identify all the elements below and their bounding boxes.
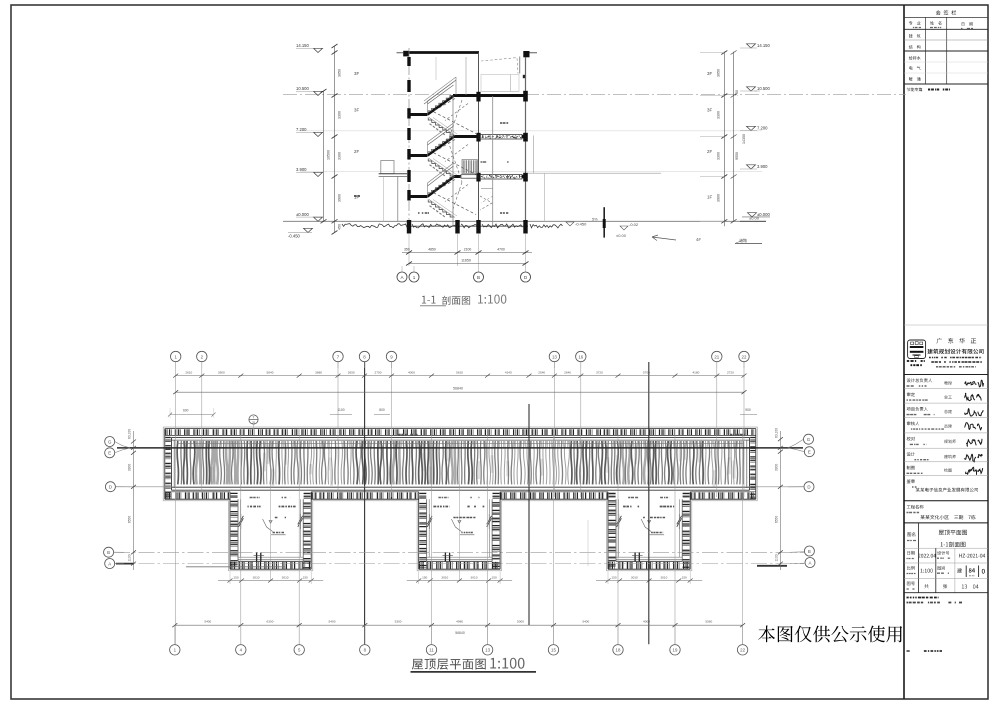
svg-text:900: 900 [745, 408, 751, 412]
svg-text:6550: 6550 [774, 516, 778, 524]
svg-text:350: 350 [404, 248, 410, 252]
svg-text:3880: 3880 [315, 370, 322, 374]
svg-text:14.150: 14.150 [757, 43, 770, 48]
svg-text:150: 150 [422, 576, 427, 580]
svg-text:3900: 3900 [218, 370, 225, 374]
svg-text:3900: 3900 [717, 194, 721, 202]
svg-text:D: D [109, 485, 112, 490]
svg-text:450: 450 [338, 224, 342, 230]
svg-text:3900: 3900 [774, 464, 778, 472]
svg-text:B: B [808, 549, 811, 554]
svg-text:56840: 56840 [455, 631, 465, 635]
svg-text:3720: 3720 [596, 370, 603, 374]
svg-text:3300: 3300 [338, 111, 342, 119]
svg-text:150: 150 [303, 576, 308, 580]
svg-text:21: 21 [714, 354, 719, 359]
svg-text:±0.000: ±0.000 [757, 212, 770, 217]
svg-text:1F: 1F [354, 195, 359, 200]
svg-text:16: 16 [578, 354, 583, 359]
svg-text:A: A [809, 560, 812, 565]
svg-text:5000: 5000 [517, 620, 524, 624]
svg-text:800: 800 [379, 408, 385, 412]
svg-text:60,100: 60,100 [127, 429, 131, 439]
svg-text:3F: 3F [354, 71, 359, 76]
svg-text:7: 7 [253, 415, 255, 419]
svg-text:-0.450: -0.450 [575, 222, 587, 227]
svg-text:3F: 3F [707, 71, 712, 76]
svg-text:4#: 4# [696, 237, 701, 242]
svg-text:-0.450: -0.450 [288, 234, 301, 239]
svg-text:2610: 2610 [185, 370, 192, 374]
svg-text:±0.00: ±0.00 [616, 233, 627, 238]
svg-text:G: G [807, 437, 811, 442]
svg-text:2540: 2540 [538, 370, 545, 374]
svg-text:10.500: 10.500 [296, 86, 309, 91]
svg-text:B: B [107, 550, 110, 555]
svg-text:1100: 1100 [337, 408, 344, 412]
svg-text:3900: 3900 [127, 464, 131, 472]
svg-text:6550: 6550 [127, 516, 131, 524]
svg-text:13: 13 [552, 354, 557, 359]
svg-text:150: 150 [682, 576, 687, 580]
svg-text:2650: 2650 [348, 370, 355, 374]
svg-text:2F: 2F [354, 149, 359, 154]
svg-text:3F: 3F [707, 108, 712, 113]
svg-text:60,100: 60,100 [774, 428, 778, 438]
svg-text:D: D [807, 485, 810, 490]
svg-text:E: E [108, 451, 111, 456]
svg-text:750: 750 [735, 90, 739, 96]
svg-text:3010: 3010 [631, 576, 638, 580]
svg-text:3650: 3650 [717, 69, 721, 77]
svg-text:1F: 1F [707, 195, 712, 200]
svg-text:5700: 5700 [643, 370, 650, 374]
svg-text:4000: 4000 [408, 370, 415, 374]
svg-text:3300: 3300 [717, 152, 721, 160]
svg-text:3F: 3F [354, 108, 359, 113]
svg-text:3300: 3300 [338, 152, 342, 160]
svg-text:14.150: 14.150 [296, 43, 309, 48]
svg-text:22: 22 [742, 354, 747, 359]
svg-text:±0.00: ±0.00 [749, 216, 760, 221]
svg-text:11650: 11650 [461, 258, 471, 262]
svg-text:3010: 3010 [471, 576, 478, 580]
svg-text:22: 22 [740, 648, 745, 653]
svg-text:150: 150 [492, 576, 497, 580]
svg-text:4000: 4000 [643, 620, 650, 624]
svg-text:2F: 2F [707, 149, 712, 154]
svg-text:E: E [808, 450, 811, 455]
svg-text:2720: 2720 [727, 370, 734, 374]
svg-text:5400: 5400 [204, 620, 211, 624]
svg-text:5%: 5% [592, 218, 598, 222]
svg-text:4980: 4980 [456, 620, 463, 624]
svg-text:1130: 1130 [774, 554, 778, 561]
svg-text:9550: 9550 [735, 152, 739, 160]
svg-text:7.200: 7.200 [296, 127, 307, 132]
svg-text:150: 150 [233, 576, 238, 580]
svg-text:5610: 5610 [456, 370, 463, 374]
svg-text:3.900: 3.900 [296, 167, 307, 172]
svg-text:4180: 4180 [692, 370, 699, 374]
svg-text:3650: 3650 [338, 69, 342, 77]
svg-text:2700: 2700 [375, 370, 382, 374]
svg-text:3.900: 3.900 [757, 164, 768, 169]
svg-text:15: 15 [551, 648, 556, 653]
svg-text:J5: J5 [252, 421, 256, 425]
svg-text:1130: 1130 [127, 554, 131, 561]
svg-text:10.500: 10.500 [757, 86, 770, 91]
svg-text:3300: 3300 [717, 111, 721, 119]
svg-text:18: 18 [616, 648, 621, 653]
svg-text:13: 13 [485, 648, 490, 653]
svg-text:3010: 3010 [253, 576, 260, 580]
svg-text:11: 11 [429, 648, 434, 653]
svg-text:5840: 5840 [267, 370, 274, 374]
svg-text:G: G [108, 439, 112, 444]
svg-text:3010: 3010 [282, 576, 289, 580]
svg-text:6300: 6300 [267, 620, 274, 624]
svg-text:1: 1 [413, 275, 416, 280]
svg-text:2100: 2100 [464, 248, 472, 252]
svg-text:7.200: 7.200 [757, 126, 768, 131]
svg-text:14350: 14350 [742, 134, 746, 144]
svg-text:4140: 4140 [505, 370, 512, 374]
svg-text:±0.000: ±0.000 [296, 212, 309, 217]
svg-text:4700: 4700 [497, 248, 505, 252]
svg-text:5400: 5400 [582, 620, 589, 624]
svg-text:5300: 5300 [395, 620, 402, 624]
svg-text:3900: 3900 [338, 194, 342, 202]
svg-text:5400: 5400 [329, 620, 336, 624]
svg-text:2640: 2640 [564, 370, 571, 374]
svg-text:3010: 3010 [441, 576, 448, 580]
svg-text:-0.02: -0.02 [629, 222, 639, 227]
svg-text:B: B [477, 275, 480, 280]
svg-text:3010: 3010 [660, 576, 667, 580]
svg-text:56840: 56840 [453, 387, 463, 391]
svg-text:10500: 10500 [327, 150, 331, 160]
svg-text:5560: 5560 [705, 620, 712, 624]
svg-text:A: A [108, 561, 111, 566]
svg-text:4850: 4850 [428, 248, 436, 252]
svg-text:150: 150 [611, 576, 616, 580]
svg-text:600: 600 [183, 409, 189, 413]
svg-text:19: 19 [673, 648, 678, 653]
